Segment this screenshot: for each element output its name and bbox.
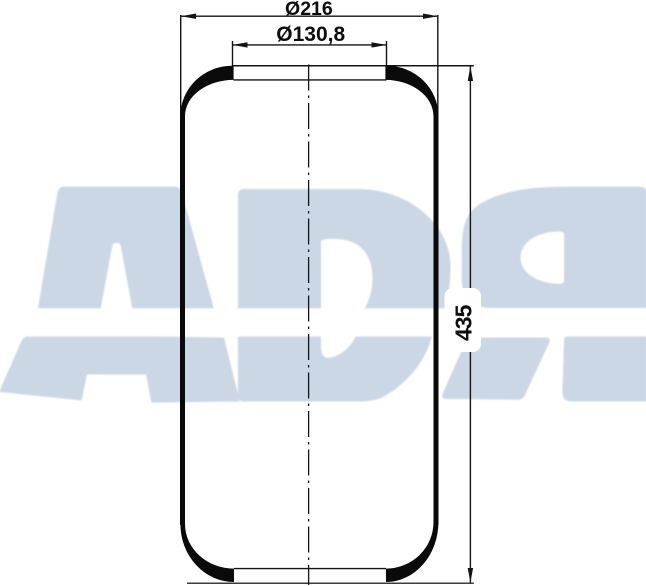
svg-text:Ø130,8: Ø130,8 — [276, 23, 345, 46]
svg-text:Ø216: Ø216 — [285, 0, 333, 20]
svg-text:435: 435 — [451, 304, 477, 341]
